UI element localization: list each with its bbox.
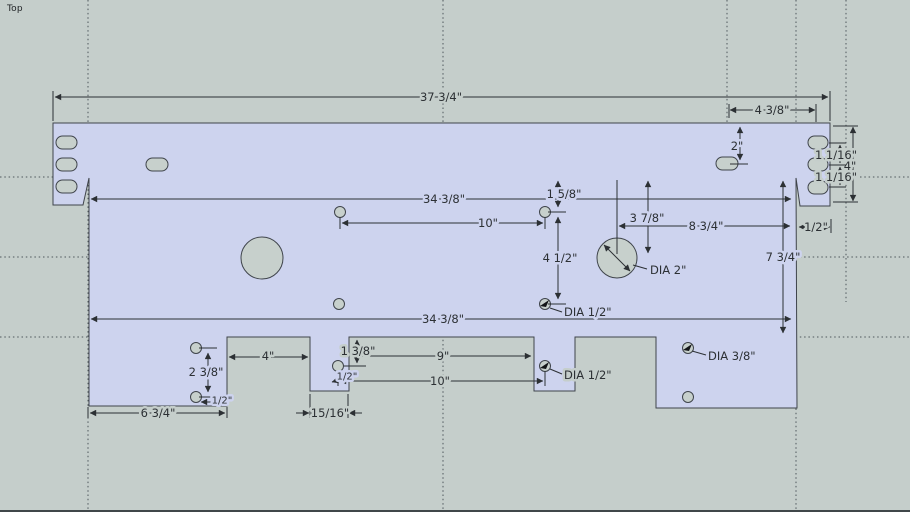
dim-tab-hole-inset[interactable]: 1/2" (332, 372, 357, 383)
dim-label: 1 1/16" (815, 148, 857, 162)
dim-right-step[interactable]: 1/2" (799, 219, 831, 234)
cad-viewport[interactable]: Top (0, 0, 910, 512)
dim-label: 10" (430, 374, 450, 388)
dim-label: 1 3/8" (341, 344, 376, 358)
dim-notch-width-mid[interactable]: 9" (352, 349, 531, 363)
dim-label: 10" (478, 216, 498, 230)
dim-label: 1 5/8" (547, 187, 582, 201)
dim-label: 34 3/8" (422, 312, 464, 326)
dim-notch-width-left[interactable]: 4" (229, 349, 308, 363)
drawing-canvas[interactable]: 37 3/4" 4 3/8" 2" 4" 1 1/16" (0, 0, 910, 512)
dim-label: 9" (437, 349, 450, 363)
dim-small-tab-width[interactable]: 15/16" (296, 394, 362, 420)
dim-label: 1/2" (212, 396, 233, 407)
dim-right-slot-pitch-bottom[interactable]: 1 1/16" (815, 167, 857, 185)
dim-label: 34 3/8" (423, 192, 465, 206)
dim-label: 15/16" (311, 406, 349, 420)
dim-overall-width[interactable]: 37 3/4" (53, 90, 830, 121)
dim-label: 2" (731, 139, 744, 153)
dim-label: 4 3/8" (755, 103, 790, 117)
hole-top-left[interactable] (335, 207, 346, 218)
part[interactable] (53, 123, 830, 408)
hole-2in-left[interactable] (241, 237, 283, 279)
dim-label: 3 7/8" (630, 211, 665, 225)
hole-tab2[interactable] (333, 361, 344, 372)
callout-label: DIA 2" (650, 263, 686, 277)
dim-left-tab-width[interactable]: 6 3/4" (88, 406, 227, 420)
slot-left-3[interactable] (56, 180, 77, 193)
slot-left-1[interactable] (56, 136, 77, 149)
dim-flange-slot-offset[interactable]: 4 3/8" (729, 103, 816, 122)
dim-label: 1 1/16" (815, 170, 857, 184)
slot-mid-left[interactable] (146, 158, 168, 171)
hole-mid-left[interactable] (334, 299, 345, 310)
dim-label: 4 1/2" (543, 251, 578, 265)
part-face[interactable] (53, 123, 830, 408)
callout-label: DIA 1/2" (564, 368, 612, 382)
dim-label: 2 3/8" (189, 365, 224, 379)
dim-label: 7 3/4" (766, 250, 801, 264)
dim-label: 6 3/4" (141, 406, 176, 420)
dim-label: 8 3/4" (689, 219, 724, 233)
callout-label: DIA 3/8" (708, 349, 756, 363)
dim-label: 1/2" (804, 220, 828, 234)
hole-tab4-lower[interactable] (683, 392, 694, 403)
dim-label: 4" (262, 349, 275, 363)
callout-label: DIA 1/2" (564, 305, 612, 319)
dim-label: 1/2" (337, 372, 358, 383)
dim-label: 37 3/4" (420, 90, 462, 104)
dim-bottom-hole-spacing[interactable]: 10" (338, 371, 545, 388)
slot-left-2[interactable] (56, 158, 77, 171)
